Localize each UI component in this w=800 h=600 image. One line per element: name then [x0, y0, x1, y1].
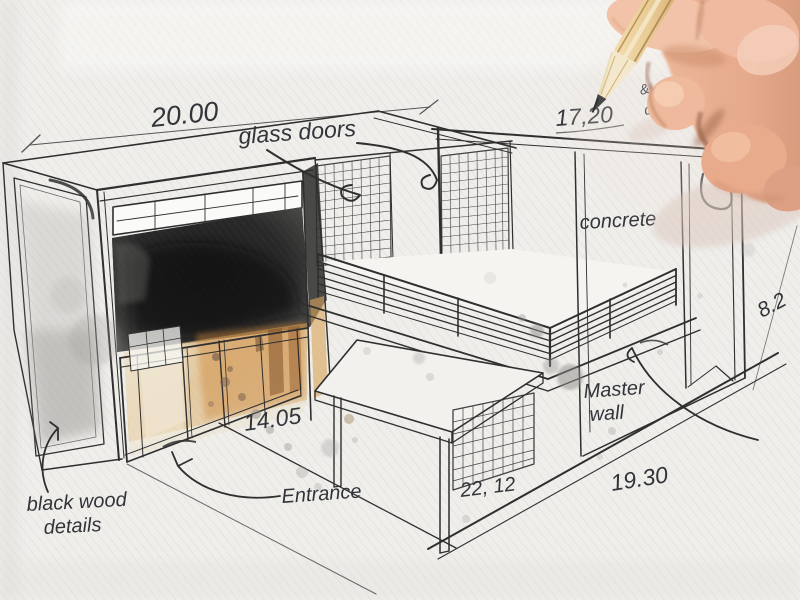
svg-text:details: details: [43, 514, 102, 539]
svg-text:wall: wall: [589, 402, 625, 426]
svg-text:Master: Master: [583, 377, 647, 403]
